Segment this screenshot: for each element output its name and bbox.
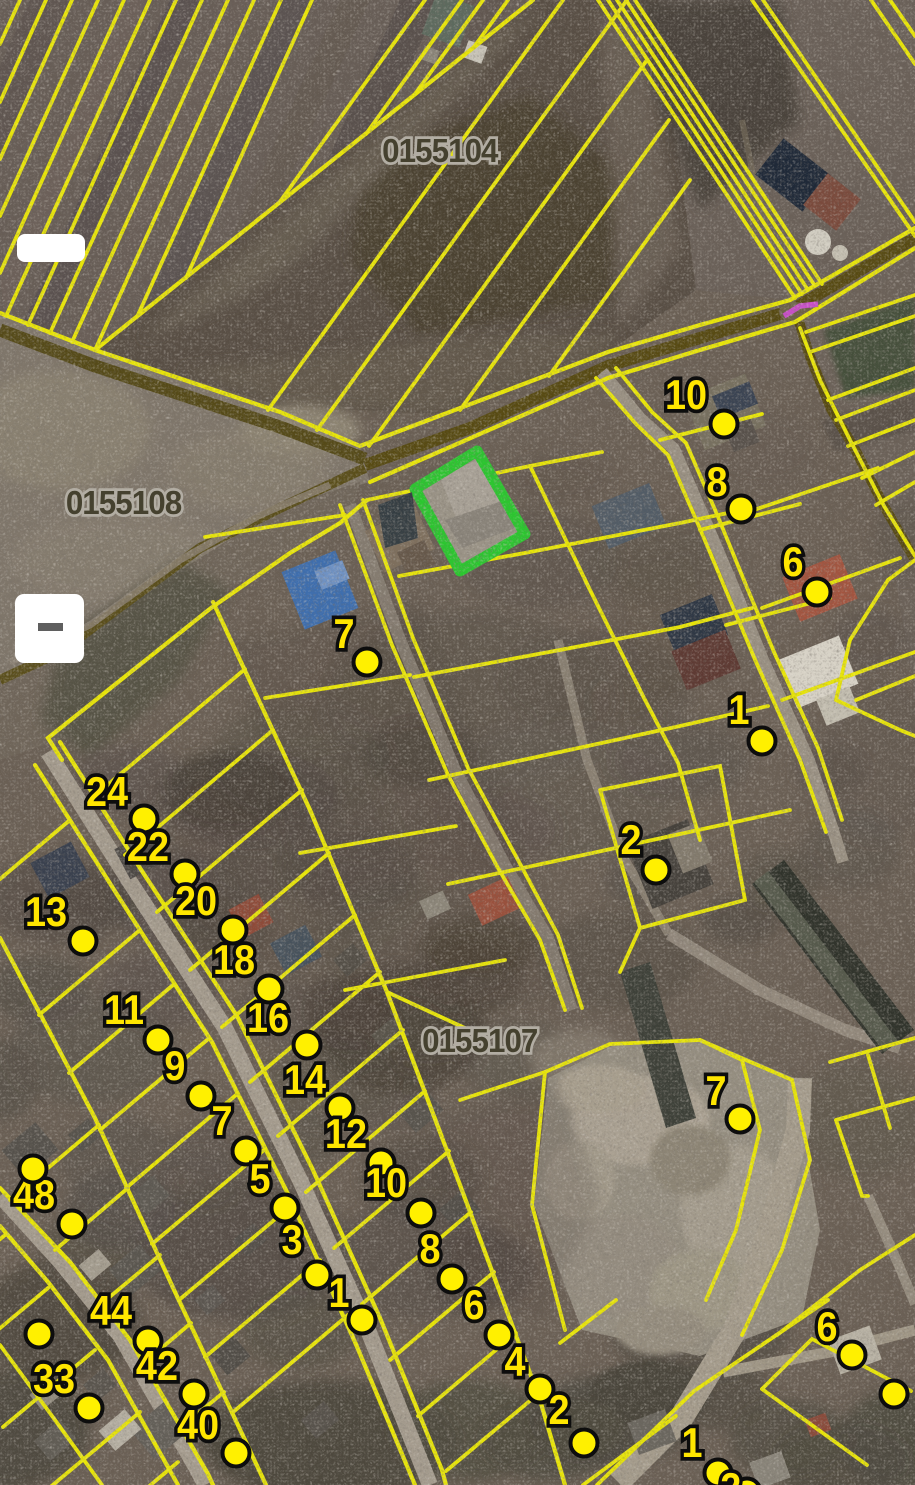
svg-text:33: 33 bbox=[33, 1356, 75, 1402]
svg-text:6: 6 bbox=[817, 1304, 838, 1350]
svg-text:42: 42 bbox=[136, 1343, 178, 1389]
svg-text:18: 18 bbox=[213, 937, 255, 983]
svg-text:24: 24 bbox=[86, 769, 128, 815]
svg-text:20: 20 bbox=[175, 878, 217, 924]
svg-text:5: 5 bbox=[249, 1156, 270, 1202]
svg-text:44: 44 bbox=[90, 1288, 132, 1334]
svg-text:1: 1 bbox=[682, 1420, 703, 1466]
svg-text:0155104: 0155104 bbox=[382, 132, 498, 169]
svg-text:16: 16 bbox=[247, 995, 289, 1041]
svg-text:8: 8 bbox=[420, 1226, 441, 1272]
svg-text:10: 10 bbox=[365, 1160, 407, 1206]
svg-text:9: 9 bbox=[164, 1043, 185, 1089]
svg-text:4: 4 bbox=[504, 1339, 525, 1385]
svg-text:22: 22 bbox=[127, 824, 169, 870]
svg-text:0155107: 0155107 bbox=[422, 1022, 537, 1059]
svg-text:8: 8 bbox=[707, 459, 728, 505]
svg-text:0155108: 0155108 bbox=[66, 484, 181, 521]
svg-text:11: 11 bbox=[104, 987, 144, 1033]
svg-text:2: 2 bbox=[548, 1387, 569, 1433]
svg-text:1: 1 bbox=[329, 1270, 350, 1316]
svg-text:3: 3 bbox=[281, 1217, 302, 1263]
svg-text:2: 2 bbox=[720, 1465, 741, 1485]
svg-text:7: 7 bbox=[212, 1098, 233, 1144]
svg-text:6: 6 bbox=[782, 539, 803, 585]
svg-text:7: 7 bbox=[706, 1068, 727, 1114]
svg-text:6: 6 bbox=[464, 1282, 485, 1328]
svg-text:7: 7 bbox=[333, 611, 354, 657]
svg-text:12: 12 bbox=[325, 1111, 367, 1157]
svg-text:10: 10 bbox=[665, 372, 707, 418]
svg-text:1: 1 bbox=[728, 687, 749, 733]
svg-text:13: 13 bbox=[25, 889, 67, 935]
svg-text:2: 2 bbox=[620, 817, 641, 863]
svg-text:14: 14 bbox=[284, 1057, 326, 1103]
svg-text:40: 40 bbox=[177, 1402, 219, 1448]
